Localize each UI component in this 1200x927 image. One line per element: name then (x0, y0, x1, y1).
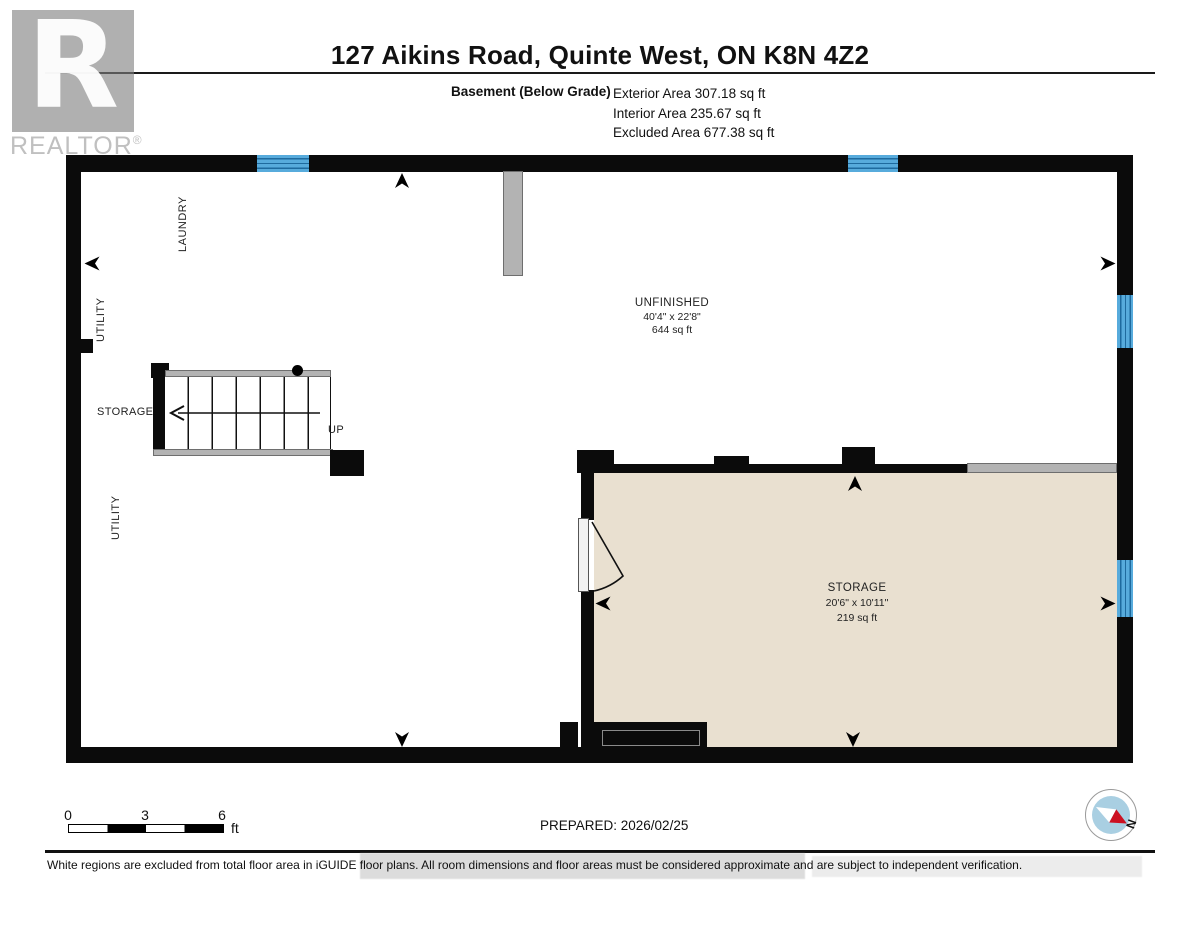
floorplan-page: 127 Aikins Road, Quinte West, ON K8N 4Z2… (0, 0, 1200, 927)
measure-arrow-right-icon (1101, 257, 1116, 271)
compass-icon: N (1085, 789, 1137, 841)
measure-arrow-left-icon (85, 257, 100, 271)
interior-area: Interior Area 235.67 sq ft (613, 104, 774, 124)
area-summary: Exterior Area 307.18 sq ft Interior Area… (613, 84, 774, 143)
title-divider (45, 72, 1155, 74)
storage-wall-left-upper (581, 473, 594, 520)
scale-tick-0: 0 (61, 807, 75, 823)
stair-bottom-rail (153, 449, 333, 456)
outer-wall-right (1117, 155, 1133, 763)
page-title: 127 Aikins Road, Quinte West, ON K8N 4Z2 (0, 40, 1200, 71)
floor-name-label: Basement (Below Grade) (451, 84, 611, 99)
up-label: UP (328, 424, 344, 436)
storage-wall-left-lower (581, 590, 594, 750)
bottom-wall-stub (560, 722, 578, 763)
scale-unit-label: ft (231, 820, 239, 836)
stair-direction-arrow-icon (168, 405, 324, 421)
storage-room-text: STORAGE 20'6" x 10'11" 219 sq ft (772, 581, 942, 626)
scale-tick-3: 3 (138, 807, 152, 823)
excluded-area: Excluded Area 677.38 sq ft (613, 123, 774, 143)
unfinished-room-text: UNFINISHED 40'4" x 22'8" 644 sq ft (587, 297, 757, 338)
storage-side-label: STORAGE (97, 406, 153, 418)
window-top-left (257, 155, 309, 172)
storage-wall-bump-center (842, 447, 875, 465)
measure-arrow-down-storage-icon (846, 732, 860, 747)
outer-wall-top (66, 155, 1133, 172)
outer-wall-left (66, 155, 81, 763)
measure-arrow-up-storage-icon (848, 476, 862, 491)
storage-wall-top (594, 464, 970, 473)
storage-wall-top-gray (967, 463, 1117, 473)
exterior-area: Exterior Area 307.18 sq ft (613, 84, 774, 104)
storage-room-name: STORAGE (772, 581, 942, 596)
door-swing-icon (585, 518, 635, 596)
registered-mark: ® (133, 133, 143, 147)
realtor-logo: R REALTOR® (12, 10, 136, 160)
measure-arrow-right-storage-icon (1101, 597, 1116, 611)
realtor-logo-word: REALTOR® (10, 132, 143, 161)
utility-lower-label: UTILITY (110, 490, 122, 540)
window-top-right (848, 155, 898, 172)
scale-bar (68, 824, 224, 833)
left-wall-stub (79, 339, 93, 353)
laundry-label: LAUNDRY (177, 188, 189, 252)
window-right-upper (1117, 295, 1133, 348)
gray-column-feature (503, 171, 523, 276)
realtor-logo-square: R (12, 10, 134, 132)
measure-arrow-up-icon (395, 173, 409, 188)
unfinished-room-name: UNFINISHED (587, 297, 757, 311)
measure-arrow-left-storage-icon (596, 597, 611, 611)
stair-top-rail (165, 370, 331, 377)
storage-hearth-inset (602, 730, 700, 746)
measure-arrow-down-icon (395, 732, 409, 747)
storage-room-area: 219 sq ft (772, 611, 942, 626)
realtor-r-icon: R (12, 6, 134, 128)
stair-post-dot-icon (292, 365, 303, 376)
prepared-date: PREPARED: 2026/02/25 (540, 818, 688, 833)
disclaimer-text: White regions are excluded from total fl… (47, 858, 1022, 872)
scale-tick-6: 6 (215, 807, 229, 823)
stair-newel-wall (153, 366, 165, 456)
utility-upper-label: UTILITY (95, 292, 107, 342)
window-right-lower (1117, 560, 1133, 617)
storage-room-dims: 20'6" x 10'11" (772, 596, 942, 611)
stair-landing-block (330, 450, 364, 476)
unfinished-room-dims: 40'4" x 22'8" (587, 311, 757, 325)
unfinished-room-area: 644 sq ft (587, 324, 757, 338)
storage-wall-bump-left (714, 456, 749, 465)
